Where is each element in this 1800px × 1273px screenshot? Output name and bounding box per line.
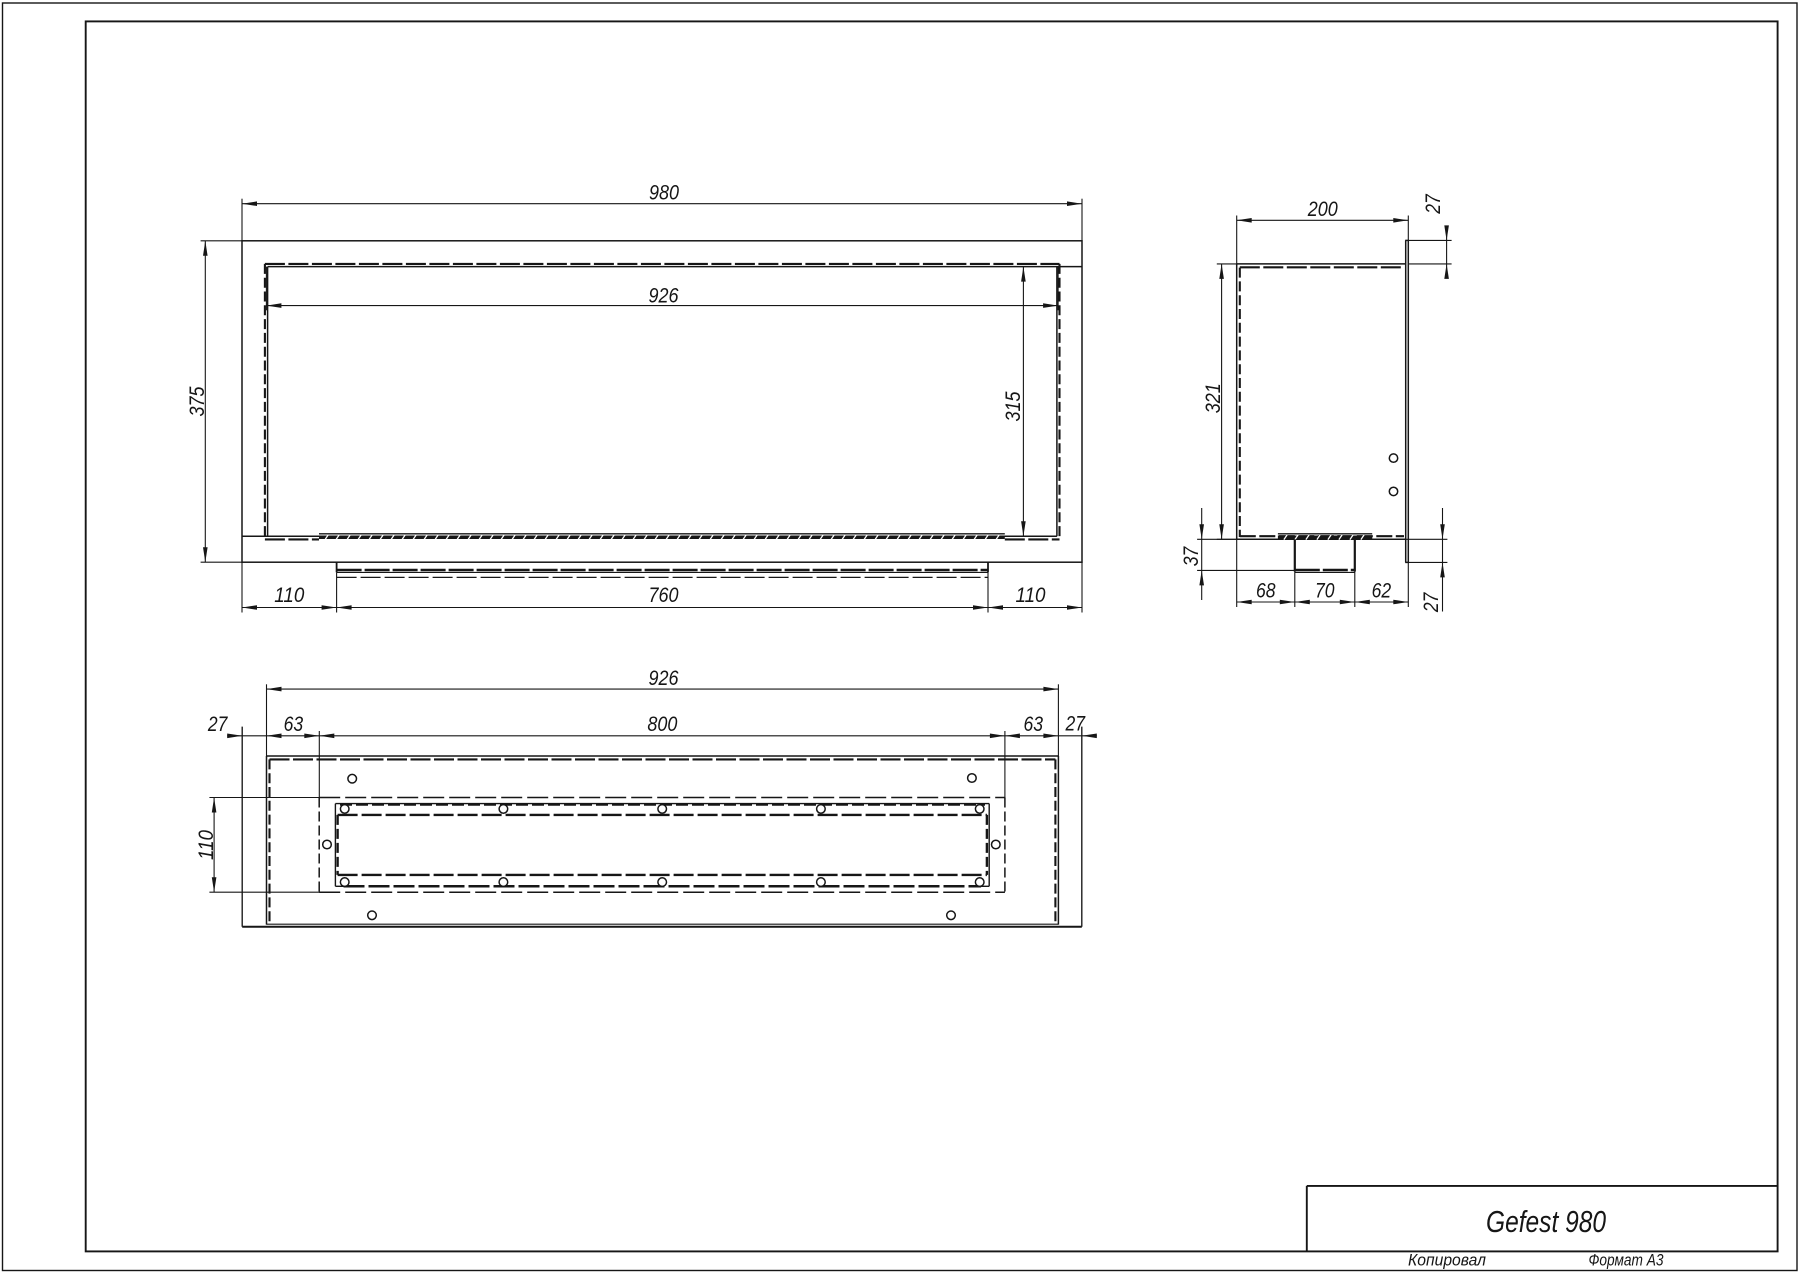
svg-text:37: 37 [1180,546,1203,567]
svg-text:27: 27 [1422,193,1445,214]
svg-text:63: 63 [1024,713,1044,736]
svg-text:980: 980 [649,182,679,205]
svg-text:760: 760 [649,584,679,607]
svg-text:27: 27 [1065,713,1086,736]
svg-text:110: 110 [1016,584,1046,607]
svg-text:321: 321 [1202,383,1225,413]
svg-text:70: 70 [1315,580,1335,603]
svg-text:Gefest 980: Gefest 980 [1486,1204,1606,1239]
svg-text:110: 110 [195,830,218,860]
svg-text:27: 27 [207,713,228,736]
svg-text:Формат А3: Формат А3 [1589,1251,1664,1270]
svg-text:62: 62 [1372,580,1392,603]
svg-text:Копировал: Копировал [1408,1251,1486,1270]
svg-text:27: 27 [1420,592,1443,613]
svg-text:926: 926 [649,667,679,690]
svg-text:375: 375 [186,386,209,416]
svg-text:68: 68 [1256,580,1276,603]
svg-text:200: 200 [1307,198,1338,221]
svg-text:926: 926 [649,285,679,308]
svg-text:110: 110 [274,584,304,607]
svg-text:63: 63 [284,713,304,736]
svg-text:315: 315 [1002,391,1025,421]
svg-text:800: 800 [647,713,677,736]
